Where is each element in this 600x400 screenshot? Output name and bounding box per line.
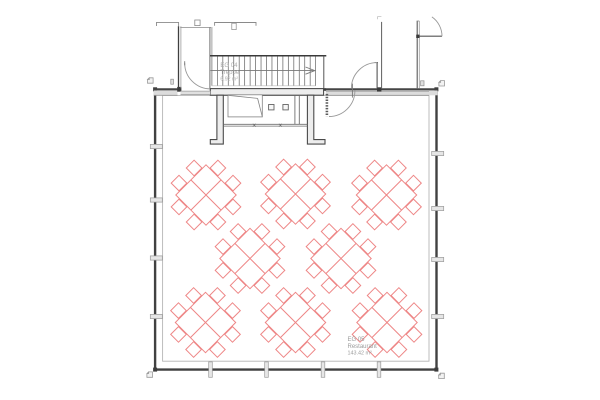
svg-text:6.92 m²: 6.92 m² [220,77,238,83]
svg-text:EG 04: EG 04 [220,63,238,69]
svg-text:Restaurant: Restaurant [348,344,378,350]
svg-text:EG 05: EG 05 [348,337,366,343]
svg-text:Treppe: Treppe [220,70,239,76]
svg-text:143.42 m²: 143.42 m² [348,350,372,356]
